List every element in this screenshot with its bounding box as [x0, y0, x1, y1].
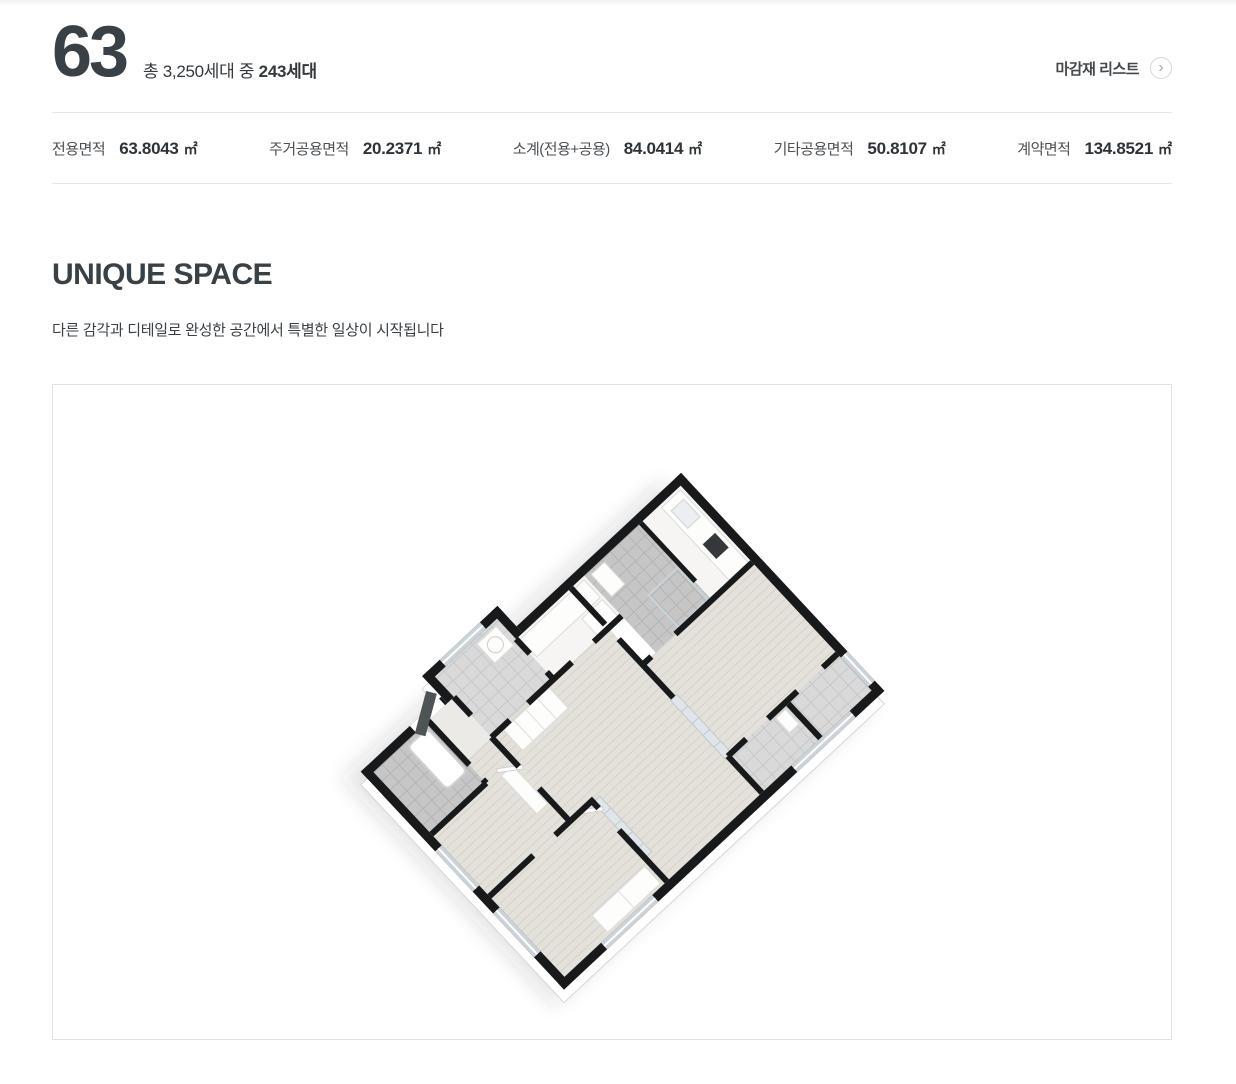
- unit-type-number: 63: [52, 16, 126, 88]
- spec-unit: ㎡: [427, 139, 441, 159]
- spec-label: 주거공용면적: [269, 138, 349, 159]
- chevron-glyph: ›: [1159, 60, 1164, 75]
- spec-label: 기타공용면적: [774, 138, 854, 159]
- spec-item-other-common-area: 기타공용면적 50.8107 ㎡: [774, 138, 946, 159]
- unit-header: 63 총 3,250세대 중 243세대 마감재 리스트 ›: [52, 6, 1172, 113]
- household-count: 243세대: [259, 62, 317, 81]
- spec-label: 계약면적: [1017, 138, 1070, 159]
- spec-value: 134.8521: [1084, 139, 1153, 159]
- spec-unit: ㎡: [1158, 139, 1172, 159]
- spec-item-subtotal-area: 소계(전용+공용) 84.0414 ㎡: [513, 138, 702, 159]
- household-prefix: 총 3,250세대 중: [143, 62, 259, 81]
- finish-list-label: 마감재 리스트: [1056, 58, 1139, 79]
- spec-value: 20.2371: [363, 139, 422, 159]
- spec-value: 50.8107: [867, 139, 926, 159]
- spec-unit: ㎡: [184, 139, 198, 159]
- page: 63 총 3,250세대 중 243세대 마감재 리스트 › 전용면적 63.8…: [52, 6, 1172, 1040]
- spec-label: 소계(전용+공용): [513, 138, 610, 159]
- floorplan-panel: [52, 384, 1172, 1040]
- spec-unit: ㎡: [932, 139, 946, 159]
- household-info: 총 3,250세대 중 243세대: [143, 57, 317, 82]
- spec-item-exclusive-area: 전용면적 63.8043 ㎡: [52, 138, 198, 159]
- spec-value: 63.8043: [119, 139, 178, 159]
- spec-label: 전용면적: [52, 138, 105, 159]
- spec-item-residential-common-area: 주거공용면적 20.2371 ㎡: [269, 138, 441, 159]
- spec-unit: ㎡: [688, 139, 702, 159]
- spec-item-contract-area: 계약면적 134.8521 ㎡: [1017, 138, 1172, 159]
- chevron-right-circle-icon: ›: [1150, 57, 1172, 79]
- spec-value: 84.0414: [624, 139, 683, 159]
- section-subtitle: 다른 감각과 디테일로 완성한 공간에서 특별한 일상이 시작됩니다: [52, 319, 1172, 340]
- area-specs-row: 전용면적 63.8043 ㎡ 주거공용면적 20.2371 ㎡ 소계(전용+공용…: [52, 113, 1172, 184]
- section-title: UNIQUE SPACE: [52, 258, 1172, 292]
- finish-list-link[interactable]: 마감재 리스트 ›: [1056, 57, 1172, 79]
- floorplan-3d-render: [53, 385, 1171, 1039]
